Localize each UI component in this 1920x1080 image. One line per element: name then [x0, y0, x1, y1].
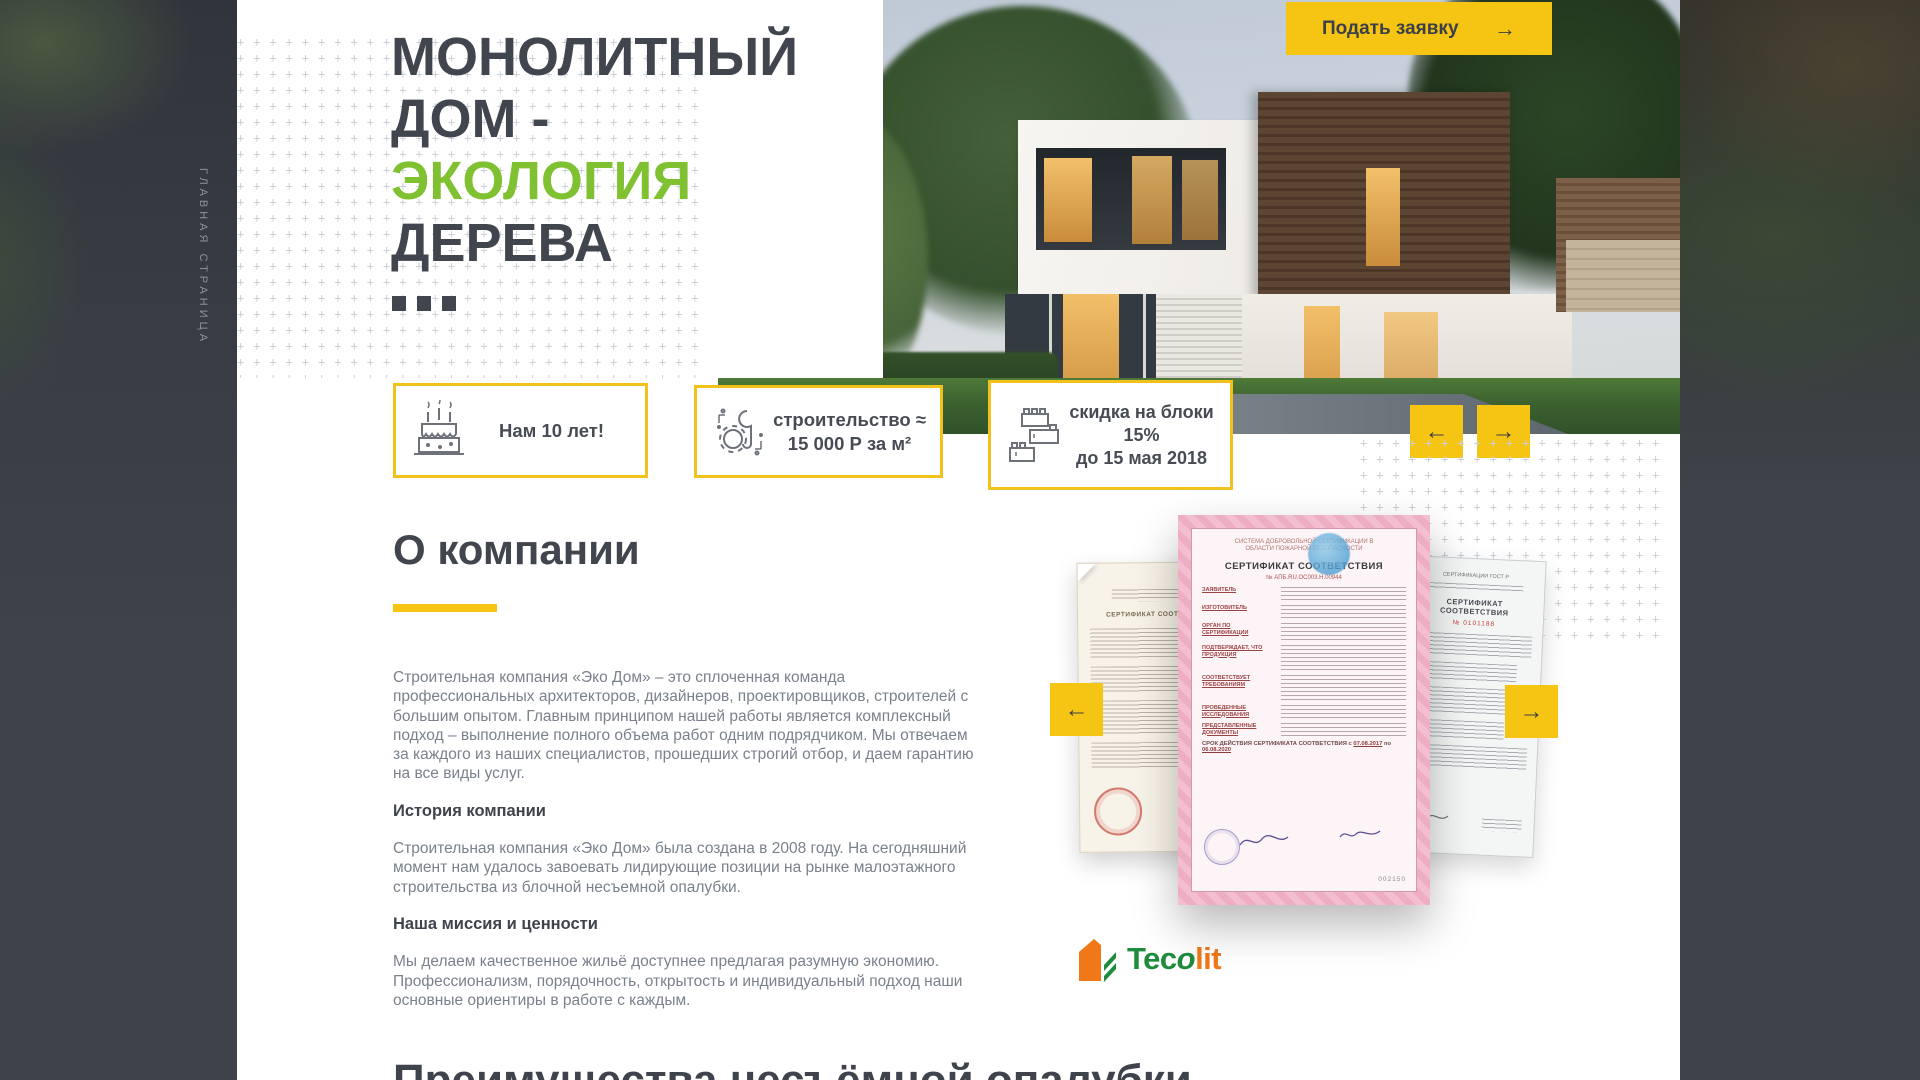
benefit-card-text: до 15 мая 2018 — [1065, 447, 1218, 470]
hero-title-line: МОНОЛИТНЫЙ — [391, 26, 798, 88]
certificate-system-header: СИСТЕМА ДОБРОВОЛЬНОЙ СЕРТИФИКАЦИИ В ОБЛА… — [1224, 539, 1383, 553]
round-stamp-blue — [1308, 533, 1350, 575]
house-window — [1366, 168, 1400, 266]
round-stamp — [1094, 787, 1143, 836]
benefit-card-text: строительство ≈ — [771, 408, 928, 432]
tecolit-wordmark: Tecolit — [1127, 941, 1221, 977]
certificate-title: СЕРТИФИКАТ СООТВЕТСТВИЯ — [1202, 561, 1406, 572]
cert-validity-to: 06.08.2020 — [1202, 747, 1231, 753]
signature-decoration — [1238, 831, 1290, 851]
arrow-right-icon: → — [1494, 16, 1516, 42]
cert-field-label: СООТВЕТСТВУЕТ ТРЕБОВАНИЯМ — [1202, 675, 1275, 700]
certificate-title: СЕРТИФИКАТ СООТВЕТСТВИЯ — [1415, 595, 1534, 618]
right-backdrop — [1680, 0, 1920, 1080]
tecolit-house-icon — [1077, 936, 1119, 982]
hero-panel: ++++++++++++++++++++++++++++++++++++++++… — [237, 0, 883, 378]
benefit-card-text: скидка на блоки — [1065, 401, 1218, 424]
left-backdrop: ГЛАВНАЯ СТРАНИЦА — [0, 0, 237, 1080]
apply-request-button[interactable]: Подать заявку → — [1286, 2, 1552, 55]
cake-icon — [408, 400, 470, 462]
round-stamp-purple — [1204, 829, 1240, 865]
about-heading: О компании — [393, 526, 640, 574]
current-page-label: ГЛАВНАЯ СТРАНИЦА — [197, 168, 209, 368]
cert-field-label: ИЗГОТОВИТЕЛЬ — [1202, 605, 1275, 618]
certificate-serial-number: 002150 — [1378, 876, 1406, 883]
next-section-heading-partial: Преимущества несъёмной опалубки — [393, 1056, 1192, 1080]
certificate-number-line: № АПБ.RU.ОС003.Н.00944 — [1202, 575, 1406, 581]
blocks-icon — [1003, 404, 1065, 466]
certificates-next-button[interactable]: → — [1505, 685, 1558, 738]
benefit-card-text: 15% — [1065, 424, 1218, 447]
about-subheading-history: История компании — [393, 802, 985, 821]
cert-field-label: ПРЕДСТАВЛЕННЫЕ ДОКУМЕНТЫ — [1202, 723, 1275, 736]
hero-title-line: ДЕРЕВА — [391, 212, 798, 274]
benefit-card-anniversary: Нам 10 лет! — [393, 383, 648, 478]
title-ellipsis-decoration — [392, 296, 456, 311]
about-paragraph: Мы делаем качественное жильё доступнее п… — [393, 952, 985, 1010]
signature-decoration — [1338, 827, 1382, 843]
cert-validity-from: 07.08.2017 — [1353, 741, 1382, 747]
cert-field-label: ОРГАН ПО СЕРТИФИКАЦИИ — [1202, 623, 1275, 640]
heading-underline-decoration — [393, 604, 497, 612]
cert-field-label: ПОДТВЕРЖДАЕТ, ЧТО ПРОДУКЦИЯ — [1202, 645, 1275, 670]
benefit-card-price: строительство ≈ 15 000 Р за м² — [694, 385, 943, 478]
certificate-number: № 0101188 — [1415, 617, 1533, 629]
hero-title-line: ДОМ - — [391, 88, 798, 150]
certificates-prev-button[interactable]: ← — [1050, 683, 1103, 736]
apply-request-label: Подать заявку — [1322, 18, 1459, 40]
benefit-card-text: 15 000 Р за м² — [771, 432, 928, 456]
about-paragraph: Строительная компания «Эко Дом» была соз… — [393, 839, 985, 897]
hero-title: МОНОЛИТНЫЙ ДОМ - ЭКОЛОГИЯ ДЕРЕВА — [391, 26, 798, 274]
construction-icon — [709, 403, 771, 461]
certificate-system-header: СЕРТИФИКАЦИИ ГОСТ Р — [1417, 570, 1535, 582]
page-fold-decoration — [1077, 564, 1095, 582]
hero-title-line-green: ЭКОЛОГИЯ — [391, 150, 798, 212]
tecolit-logo: Tecolit — [1077, 936, 1221, 982]
benefit-card-discount: скидка на блоки 15% до 15 мая 2018 — [988, 380, 1233, 490]
about-paragraph: Строительная компания «Эко Дом» – это сп… — [393, 668, 985, 784]
cert-field-label: ЗАЯВИТЕЛЬ — [1202, 587, 1275, 600]
page-content: ++++++++++++++++++++++++++++++++++++++++… — [237, 0, 1680, 1080]
benefit-card-text: Нам 10 лет! — [470, 419, 633, 443]
cert-field-label: ПРОВЕДЕННЫЕ ИССЛЕДОВАНИЯ — [1202, 705, 1275, 718]
certificate-center: СИСТЕМА ДОБРОВОЛЬНОЙ СЕРТИФИКАЦИИ В ОБЛА… — [1178, 515, 1430, 905]
about-subheading-mission: Наша миссия и ценности — [393, 915, 985, 934]
garage-door — [1566, 240, 1680, 312]
about-text: Строительная компания «Эко Дом» – это сп… — [393, 668, 985, 1028]
house-windows — [1036, 148, 1226, 250]
